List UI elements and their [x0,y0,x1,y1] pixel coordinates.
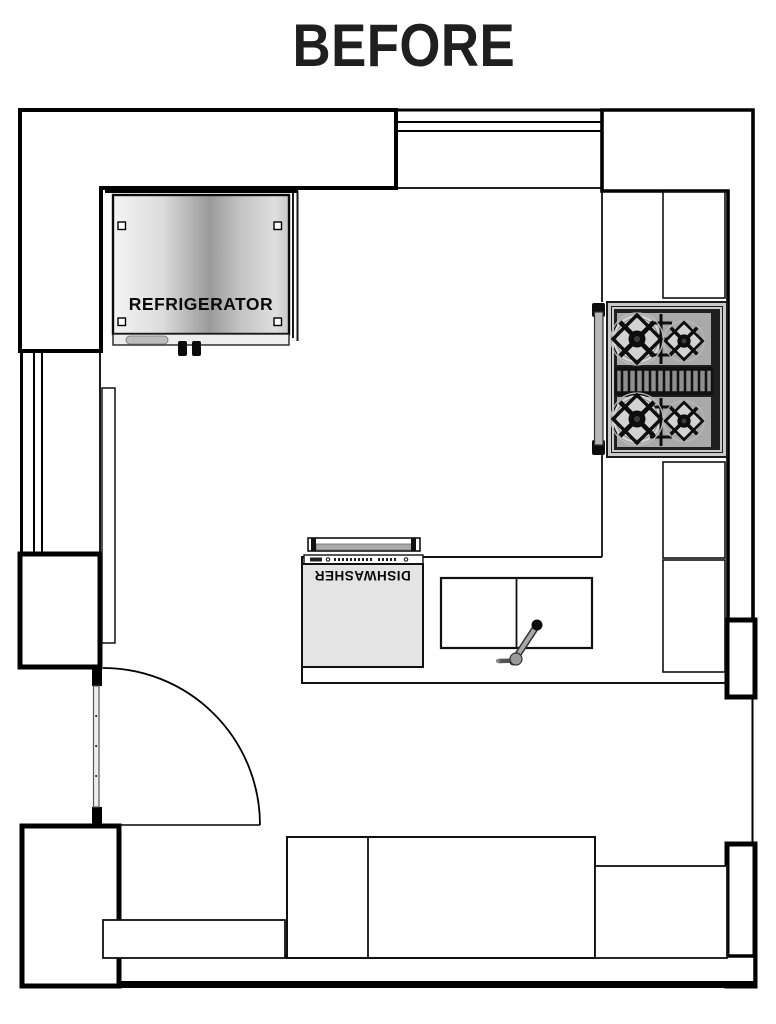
wall-left-bottom [22,826,119,986]
range-stove [592,302,727,457]
dishwasher-handle [308,538,420,551]
door-swing-arc [103,668,260,825]
door [92,667,260,826]
cabinet-right-lower [663,560,725,672]
refrigerator-label: REFRIGERATOR [129,294,273,314]
wall-right-endcap [727,620,755,697]
cabinet-right-upper [663,192,725,298]
refrigerator: REFRIGERATOR [105,191,298,356]
dishwasher-label: DISHWASHER [314,568,411,583]
door-jamb-bottom [92,807,102,826]
counter-bottom-left [103,920,285,958]
faucet-base [510,653,522,665]
floor-plan-canvas: BEFORE [0,0,776,1024]
window-top [396,110,603,188]
door-jamb-top [92,667,102,686]
window-left [22,351,101,556]
refrigerator-compressor [126,336,168,344]
counter-left-strip [102,388,115,643]
faucet-lever-cap [532,620,543,631]
counter-bottom-right [595,866,727,958]
dishwasher-control-panel [304,555,423,564]
wall-left-middle [20,554,100,667]
oven-handle [592,303,605,455]
floor-plan-drawing: REFRIGERATOR [0,0,776,1024]
dishwasher: DISHWASHER [302,538,423,667]
faucet-spout-tip [496,659,500,663]
sink [441,578,592,648]
griddle [616,368,712,394]
cabinet-right-middle [663,462,725,558]
island-bottom [287,837,595,958]
